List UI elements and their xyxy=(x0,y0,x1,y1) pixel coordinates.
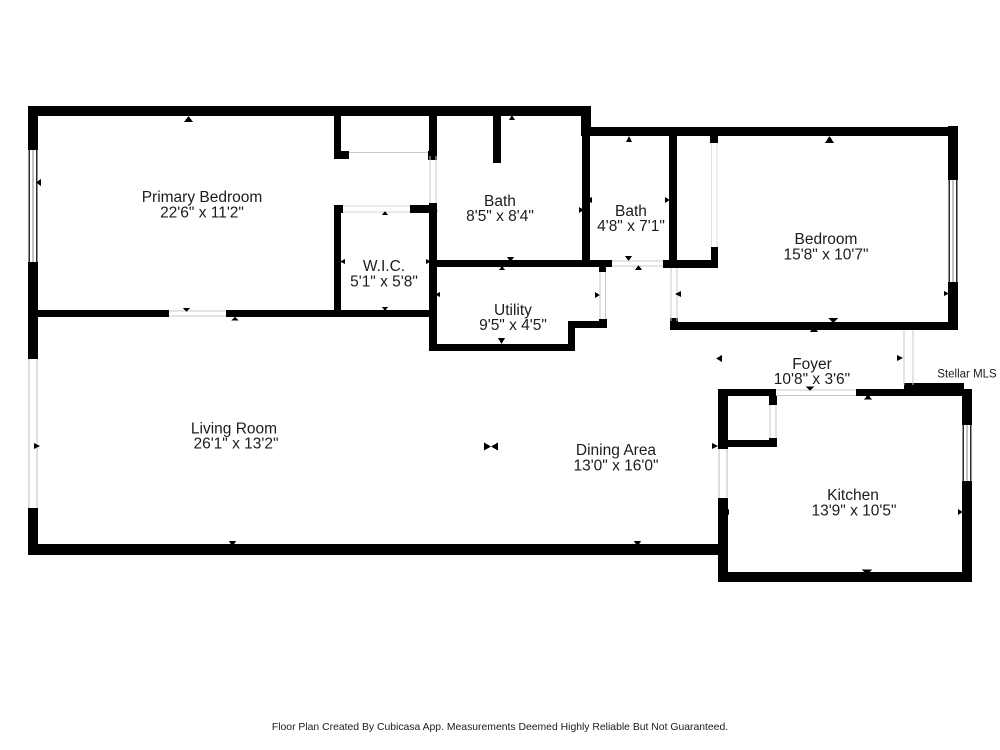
svg-text:22'6" x 11'2": 22'6" x 11'2" xyxy=(160,205,244,222)
svg-text:4'8" x 7'1": 4'8" x 7'1" xyxy=(597,218,665,235)
svg-text:Floor Plan Created By Cubicasa: Floor Plan Created By Cubicasa App. Meas… xyxy=(272,722,728,733)
svg-text:Kitchen: Kitchen xyxy=(827,487,879,504)
svg-text:W.I.C.: W.I.C. xyxy=(363,258,405,275)
svg-text:Dining Area: Dining Area xyxy=(576,442,657,459)
svg-text:5'1" x 5'8": 5'1" x 5'8" xyxy=(350,274,418,291)
svg-text:9'5" x 4'5": 9'5" x 4'5" xyxy=(479,317,547,334)
svg-text:Primary Bedroom: Primary Bedroom xyxy=(142,189,263,206)
svg-text:Stellar MLS: Stellar MLS xyxy=(937,369,997,381)
svg-text:10'8" x 3'6": 10'8" x 3'6" xyxy=(774,371,850,388)
svg-text:15'8" x 10'7": 15'8" x 10'7" xyxy=(783,247,868,264)
svg-text:13'0" x 16'0": 13'0" x 16'0" xyxy=(573,458,658,475)
svg-text:13'9" x 10'5": 13'9" x 10'5" xyxy=(811,503,896,520)
svg-text:Bedroom: Bedroom xyxy=(795,231,858,248)
svg-text:26'1" x 13'2": 26'1" x 13'2" xyxy=(193,436,278,453)
svg-text:8'5" x 8'4": 8'5" x 8'4" xyxy=(466,208,534,225)
